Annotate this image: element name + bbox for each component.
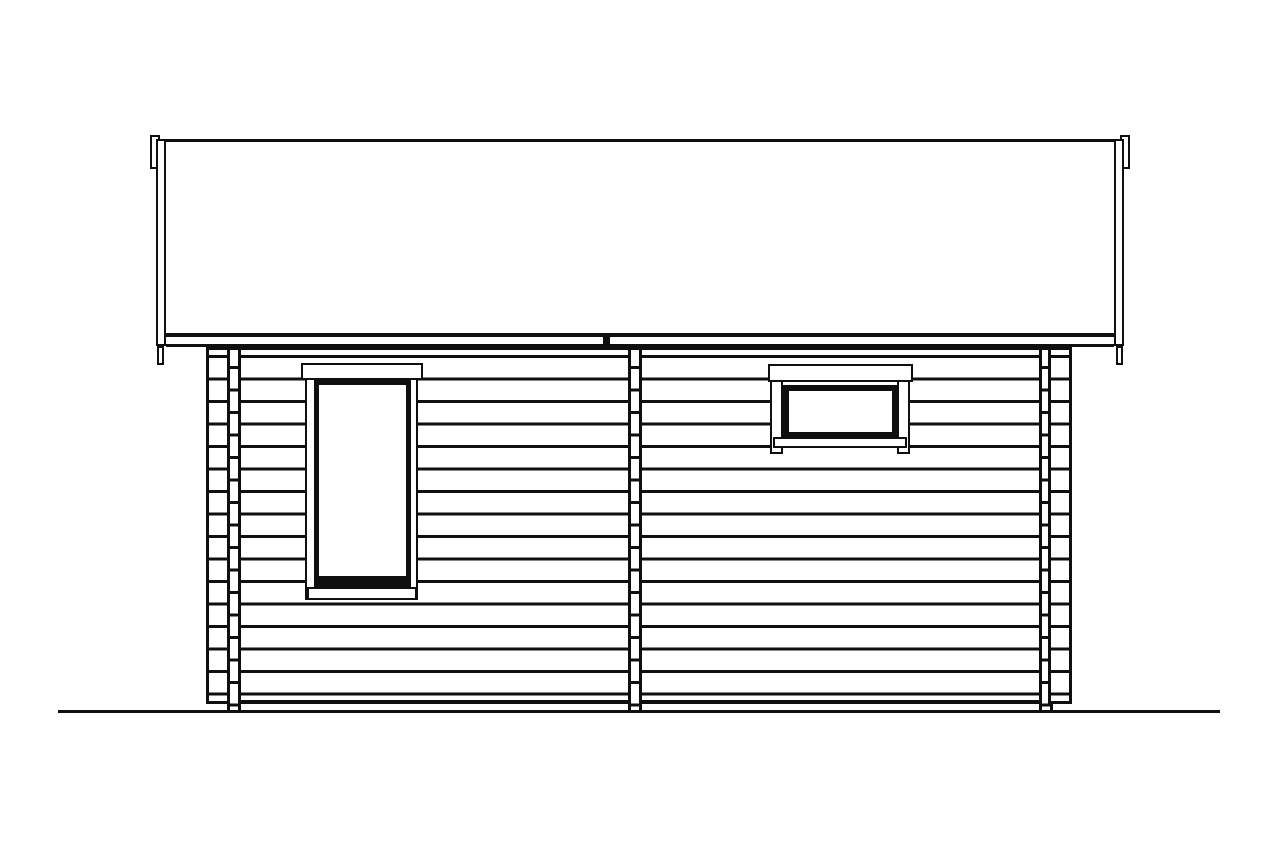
- roof-panel: [163, 139, 1117, 336]
- left-window-sash: [314, 380, 411, 590]
- right-gable-trim-board: [1114, 139, 1124, 346]
- interior-wall-log-ends: [628, 347, 642, 713]
- elevation-drawing: [0, 0, 1280, 853]
- right-window-sill: [773, 437, 907, 448]
- left-window-glass: [319, 385, 406, 585]
- right-gable-trim-stub: [1116, 346, 1123, 365]
- right-window-head-trim: [768, 364, 913, 382]
- ground-line: [58, 710, 1220, 713]
- corner-log-ends-left-inner: [227, 347, 241, 713]
- corner-log-ends-right-outer: [1048, 347, 1072, 704]
- roof-eave-joint-tick: [603, 334, 610, 347]
- right-window-glass: [788, 390, 893, 433]
- wall-left-section: [238, 347, 630, 704]
- left-gable-trim-stub: [157, 346, 164, 365]
- roof-eave-band: [166, 334, 1114, 347]
- right-window-sash: [783, 385, 898, 438]
- left-window-sill: [307, 587, 417, 600]
- left-window-bottom-rail: [319, 576, 406, 585]
- left-gable-trim-board: [156, 139, 166, 346]
